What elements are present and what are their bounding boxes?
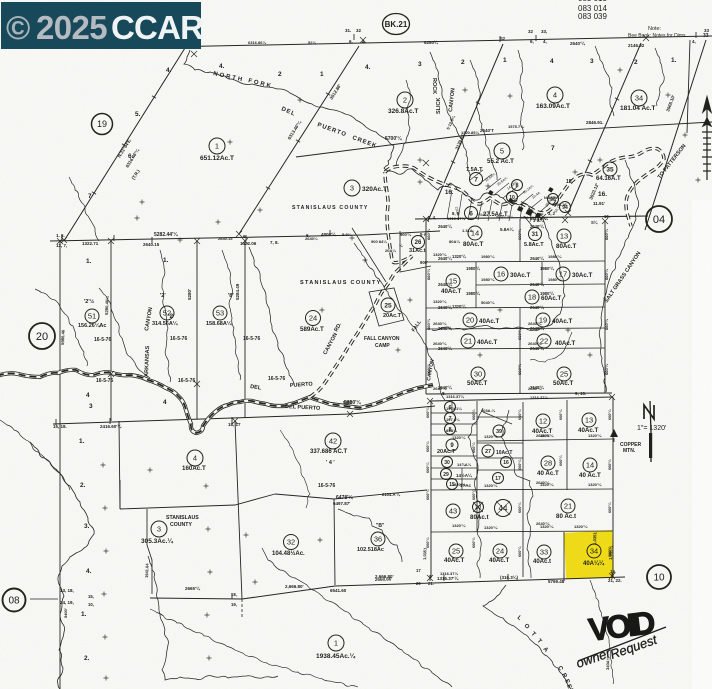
svg-text:2025: 2025 — [36, 9, 107, 46]
svg-text:CCAR: CCAR — [111, 9, 204, 46]
svg-text:©: © — [6, 9, 30, 46]
